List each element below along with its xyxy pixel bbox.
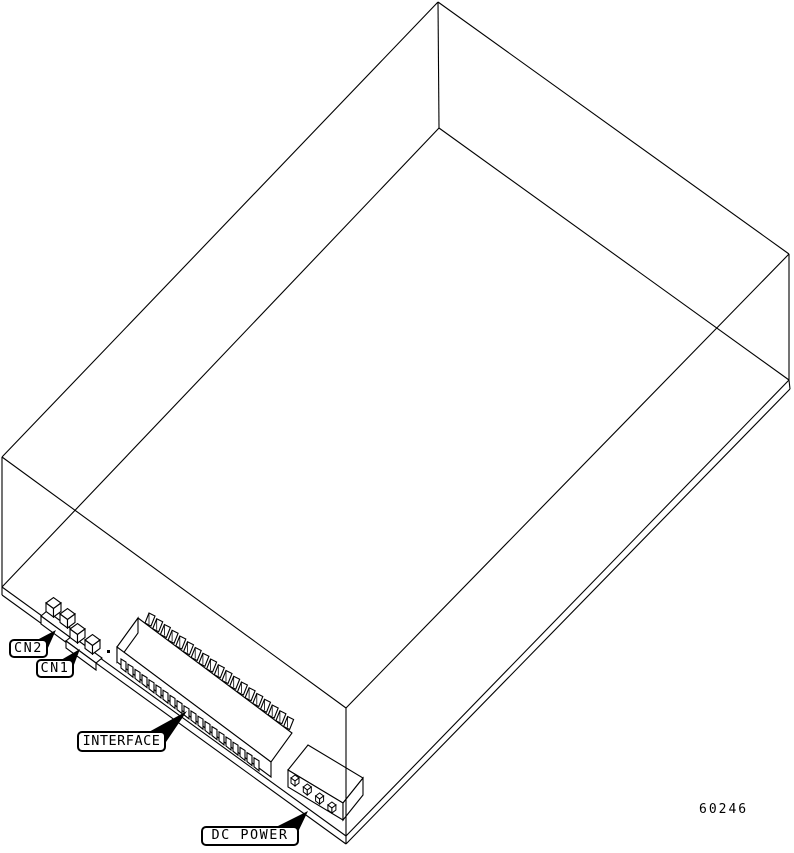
interface-label-text: INTERFACE [83,735,161,749]
connector-interface [117,613,294,777]
chassis-wireframe [2,2,789,836]
figure-number: 60246 [699,802,748,817]
pcb-edge-lines [2,380,790,844]
cn1-label-text: CN1 [41,662,70,676]
drive-line-art [0,0,794,853]
callout-cn1-label: CN1 [36,659,74,678]
callout-cn2-label: CN2 [9,639,48,658]
figure-canvas: CN2 CN1 INTERFACE DC POWER 60246 [0,0,794,853]
connector-dc-power [288,745,363,820]
callout-interface-label: INTERFACE [77,731,166,752]
cn2-label-text: CN2 [14,642,43,656]
pcb-dot [107,650,110,653]
dc-power-label-text: DC POWER [211,829,288,843]
callout-dc-power-label: DC POWER [201,826,299,846]
